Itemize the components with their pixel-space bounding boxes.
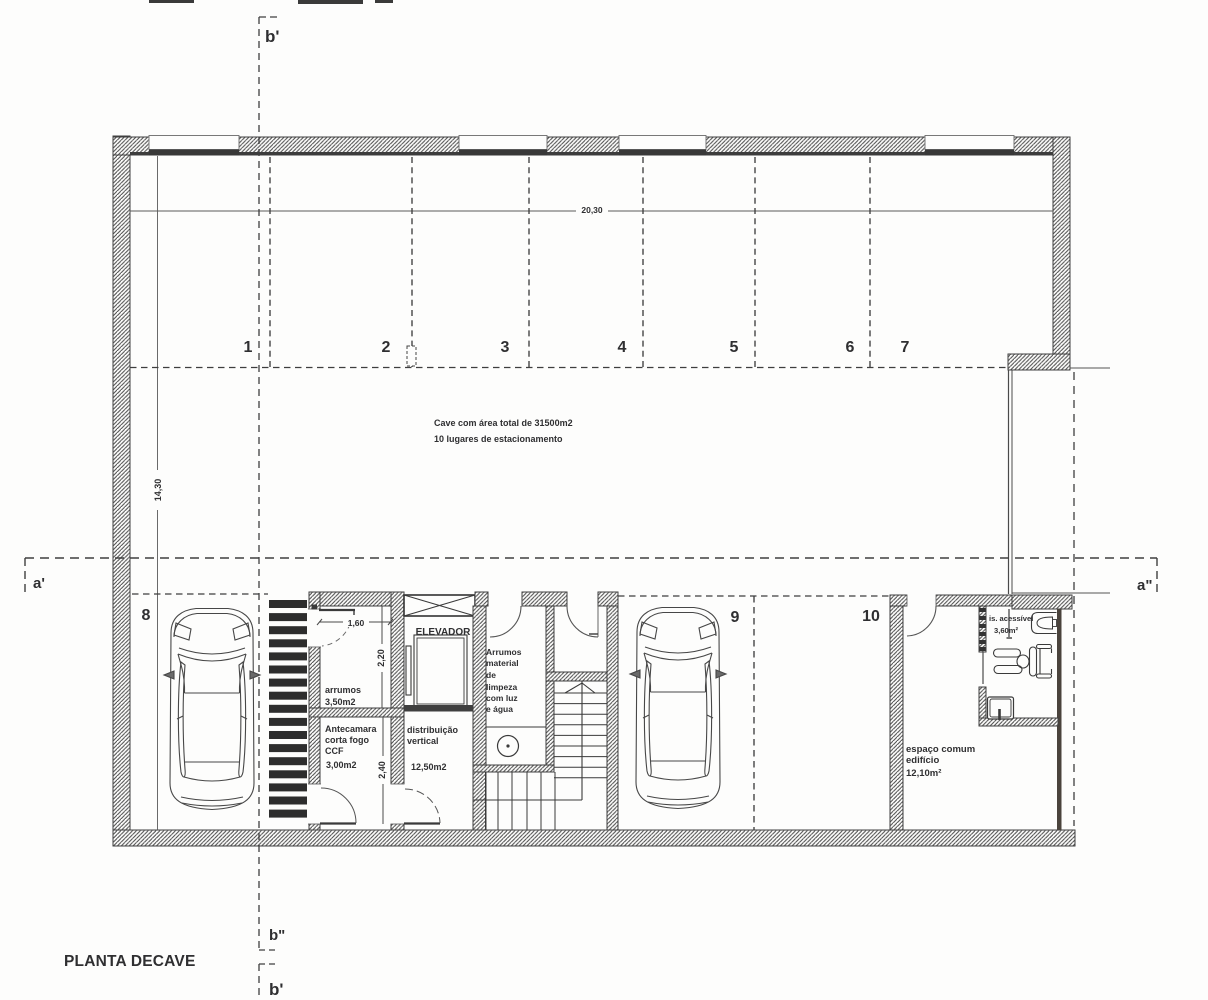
svg-text:2,20: 2,20 (376, 649, 386, 667)
svg-text:com luz: com luz (486, 693, 518, 703)
svg-text:5: 5 (730, 339, 739, 356)
svg-text:10 lugares de estacionamento: 10 lugares de estacionamento (434, 434, 563, 444)
svg-text:Antecamara: Antecamara (325, 724, 378, 734)
svg-text:limpeza: limpeza (486, 682, 517, 692)
svg-text:1: 1 (244, 339, 253, 356)
svg-text:PLANTA DECAVE: PLANTA DECAVE (64, 953, 195, 970)
svg-text:7: 7 (901, 339, 910, 356)
svg-text:3,50m2: 3,50m2 (325, 697, 356, 707)
svg-text:4: 4 (618, 339, 627, 356)
svg-text:de: de (486, 670, 496, 680)
svg-text:CCF: CCF (325, 746, 344, 756)
svg-text:espaço comum: espaço comum (906, 744, 975, 755)
svg-text:9: 9 (731, 609, 740, 626)
svg-text:1,60: 1,60 (348, 618, 365, 628)
svg-text:vertical: vertical (407, 736, 439, 746)
svg-text:3,00m2: 3,00m2 (326, 760, 357, 770)
svg-text:12,10m²: 12,10m² (906, 768, 941, 779)
svg-text:ELEVADOR: ELEVADOR (416, 627, 472, 638)
svg-text:b': b' (265, 27, 279, 46)
svg-text:10: 10 (862, 608, 880, 625)
svg-text:3,60m²: 3,60m² (994, 626, 1019, 635)
svg-text:6: 6 (846, 339, 855, 356)
svg-text:edifício: edifício (906, 755, 939, 766)
svg-text:b": b" (269, 927, 285, 944)
svg-text:b': b' (269, 980, 283, 999)
svg-text:is. acessível: is. acessível (989, 614, 1033, 623)
svg-text:8: 8 (142, 607, 151, 624)
svg-text:14,30: 14,30 (153, 479, 163, 502)
svg-text:a': a' (33, 575, 45, 592)
svg-text:12,50m2: 12,50m2 (411, 762, 447, 772)
svg-text:a": a" (1137, 577, 1152, 594)
svg-text:20,30: 20,30 (581, 205, 603, 215)
svg-text:corta fogo: corta fogo (325, 735, 370, 745)
svg-text:2: 2 (382, 339, 391, 356)
svg-text:arrumos: arrumos (325, 685, 361, 695)
svg-text:e água: e água (486, 704, 513, 714)
svg-text:Arrumos: Arrumos (486, 647, 522, 657)
svg-text:material: material (486, 658, 519, 668)
svg-text:distribuição: distribuição (407, 725, 459, 735)
svg-text:Cave com área total de 31500m2: Cave com área total de 31500m2 (434, 418, 573, 428)
svg-text:2,40: 2,40 (377, 761, 387, 779)
svg-text:3: 3 (501, 339, 510, 356)
